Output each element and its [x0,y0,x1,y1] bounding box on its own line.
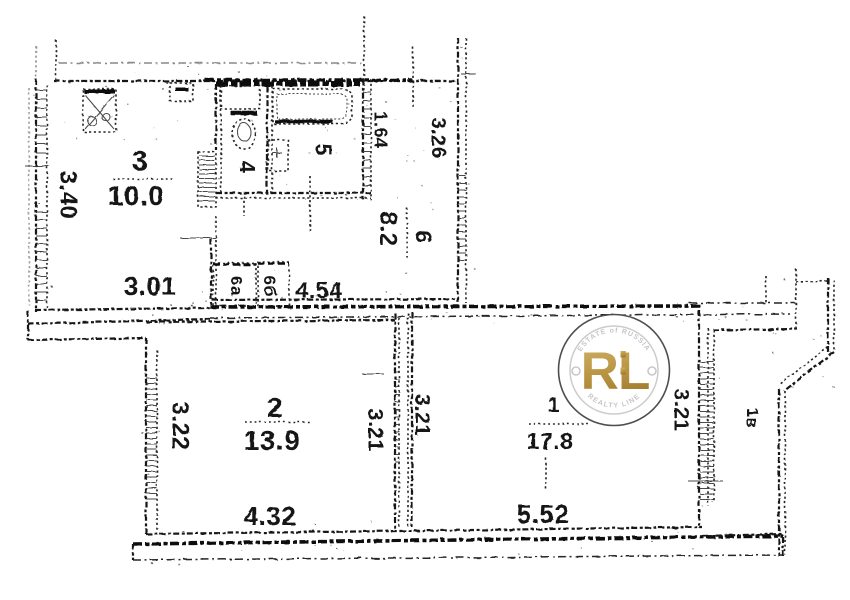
svg-text:17.8: 17.8 [527,428,574,454]
svg-text:6а: 6а [227,276,246,296]
svg-text:6: 6 [411,231,436,244]
svg-text:3.40: 3.40 [54,171,81,220]
svg-text:2: 2 [267,392,283,423]
svg-text:1: 1 [548,394,560,417]
svg-text:3.21: 3.21 [363,409,386,452]
svg-text:5: 5 [311,144,336,157]
svg-text:3.26: 3.26 [427,118,449,159]
svg-text:3.01: 3.01 [124,271,177,301]
svg-text:4.32: 4.32 [244,501,297,531]
svg-text:6б: 6б [260,276,279,297]
svg-text:3: 3 [132,145,148,176]
svg-text:3.21: 3.21 [669,389,692,432]
svg-text:5.52: 5.52 [517,499,570,529]
svg-text:13.9: 13.9 [244,425,301,456]
svg-text:3.21: 3.21 [410,394,433,437]
svg-text:8.2: 8.2 [374,212,401,247]
svg-text:RL: RL [581,342,650,401]
svg-text:1.64: 1.64 [371,111,391,148]
svg-text:3.22: 3.22 [166,402,193,451]
svg-text:1в: 1в [743,408,762,429]
svg-text:4: 4 [235,161,260,174]
svg-text:10.0: 10.0 [108,180,165,211]
